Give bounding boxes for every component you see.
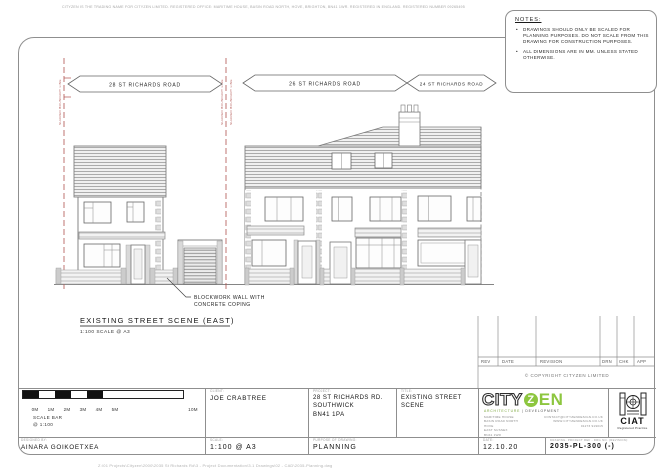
banner-24-label: 24 ST RICHARDS ROAD — [420, 81, 483, 86]
boundary-label: SHARED BOUNDARY LINE — [58, 79, 62, 125]
brand-cell: CITYZEN ARCHITECTURE | DEVELOPMENT MARIT… — [478, 388, 608, 437]
canopy — [79, 232, 165, 239]
client-name: JOE CRABTREE — [210, 395, 304, 403]
chk-col-header: CHK — [619, 359, 629, 364]
notes-box: NOTES: DRAWINGS SHOULD ONLY BE SCALED FO… — [505, 10, 657, 93]
ciat-subtitle: Registered Practice — [618, 426, 648, 430]
logo-en-text: EN — [539, 391, 564, 408]
note-item: ALL DIMENSIONS ARE IN MM. UNLESS STATED … — [515, 49, 649, 61]
tagline-architecture: ARCHITECTURE — [484, 409, 520, 413]
boundary-label: SHARED BOUNDARY LINE — [220, 79, 224, 125]
date-value: 12.10.20 — [483, 444, 541, 452]
designer-name: AINARA GOIKOETXEA — [21, 444, 202, 452]
scale-tick: 10M — [188, 407, 198, 412]
client-cell: CLIENT: JOE CRABTREE — [205, 388, 308, 437]
annotation-text: BLOCKWORK WALL WITH — [194, 295, 265, 301]
front-walls — [245, 268, 465, 285]
drn-col-header: DRN — [602, 359, 612, 364]
scale-cell: SCALE: 1:100 @ A3 — [205, 437, 308, 455]
sheet-title-line: SCENE — [401, 403, 474, 411]
drawing-title: EXISTING STREET SCENE (EAST) — [80, 316, 235, 325]
revision-col-header: REVISION — [540, 359, 562, 364]
logo-z-badge: Z — [524, 393, 538, 407]
date-cell: DATE: 12.10.20 — [478, 437, 545, 455]
logo-city-text: CITY — [482, 391, 523, 408]
designer-label: DESIGNED BY: — [21, 439, 202, 443]
date-label: DATE: — [483, 439, 541, 443]
ciat-logo — [618, 391, 648, 417]
scale-tick: 3M — [80, 407, 87, 412]
scale-label: SCALE: — [210, 439, 304, 443]
scale-tick: 0M — [32, 407, 39, 412]
scale-tick: 4M — [96, 407, 103, 412]
scale-bar-cell: 0M 1M 2M 3M 4M 5M 10M SCALE BAR @ 1:100 — [18, 388, 205, 437]
chimney — [399, 105, 420, 146]
scale-value: 1:100 @ A3 — [210, 444, 304, 452]
title-cell: TITLE: EXISTING STREET SCENE — [396, 388, 478, 437]
purpose-label: PURPOSE OF DRAWING: — [313, 439, 474, 443]
drawing-sheet: CITYZEN IS THE TRADING NAME FOR CITYZEN … — [0, 0, 670, 474]
house-28-roof — [74, 146, 166, 197]
cityzen-logo: CITYZEN — [482, 391, 605, 408]
file-path: Z:\01 Projects\Cityzen\2000\2035 St Rich… — [98, 463, 333, 468]
roof-lower — [245, 146, 481, 188]
project-address-line: BN41 1PA — [313, 412, 392, 420]
sheet-title-line: EXISTING STREET — [401, 395, 474, 403]
house-28-door — [126, 245, 150, 284]
scale-tick: 1M — [48, 407, 55, 412]
ciat-cell: CIAT Registered Practice — [608, 388, 656, 437]
first-floor-windows — [265, 196, 481, 221]
drawing-number-label: DRAWING- PROJECT REF - DRG NO. (REVISION… — [550, 439, 652, 442]
building-26-24 — [245, 105, 481, 285]
boundary-label: SHARED BOUNDARY LINE — [229, 79, 233, 125]
tagline-development: | DEVELOPMENT — [522, 409, 560, 413]
revision-table-headers: REV DATE REVISION DRN CHK APP — [481, 359, 646, 364]
ciat-name: CIAT — [620, 417, 644, 426]
notes-heading: NOTES: — [515, 17, 649, 23]
logo-tagline: ARCHITECTURE | DEVELOPMENT — [484, 409, 605, 413]
house-28 — [56, 146, 178, 284]
project-cell: PROJECT: 28 ST RICHARDS RD. SOUTHWICK BN… — [308, 388, 396, 437]
drawing-number-cell: DRAWING- PROJECT REF - DRG NO. (REVISION… — [545, 437, 656, 455]
app-col-header: APP — [637, 359, 646, 364]
front-wall — [56, 268, 178, 284]
rev-col-header: REV — [481, 359, 491, 364]
company-registration-line: CITYZEN IS THE TRADING NAME FOR CITYZEN … — [62, 5, 465, 9]
annotation-text: CONCRETE COPING — [194, 302, 251, 308]
date-col-header: DATE — [502, 359, 514, 364]
drawing-number: 2035-PL-300 (-) — [550, 443, 652, 451]
note-item: DRAWINGS SHOULD ONLY BE SCALED FOR PLANN… — [515, 27, 649, 46]
scale-bar-caption: SCALE BAR — [33, 415, 62, 420]
brand-address: MARITIME HOUSE BASIN ROAD NORTH HOVE EAS… — [484, 415, 518, 437]
designer-cell: DESIGNED BY: AINARA GOIKOETXEA — [18, 437, 205, 455]
scale-bar — [22, 390, 184, 399]
scale-bar-caption: @ 1:100 — [33, 422, 53, 427]
project-address-line: 28 ST RICHARDS RD. — [313, 395, 392, 403]
purpose-value: PLANNING — [313, 444, 474, 452]
scale-tick: 5M — [112, 407, 119, 412]
drawing-scale-note: 1:100 SCALE @ A3 — [80, 329, 130, 335]
brand-contact: CONTACT@CITYZENDESIGN.CO.UK WWW.CITYZEND… — [544, 415, 603, 437]
client-label: CLIENT: — [210, 390, 304, 394]
project-address-line: SOUTHWICK — [313, 403, 392, 411]
banner-26-label: 26 ST RICHARDS ROAD — [289, 81, 361, 87]
project-label: PROJECT: — [313, 390, 392, 394]
boundary-line-left — [64, 58, 71, 290]
title-label: TITLE: — [401, 390, 474, 394]
purpose-cell: PURPOSE OF DRAWING: PLANNING — [308, 437, 478, 455]
garage-door — [184, 248, 216, 284]
copyright-note: © COPYRIGHT CITYZEN LIMITED — [525, 372, 609, 378]
banner-28-label: 28 ST RICHARDS ROAD — [109, 82, 181, 88]
scale-tick: 2M — [64, 407, 71, 412]
garage — [178, 240, 222, 284]
